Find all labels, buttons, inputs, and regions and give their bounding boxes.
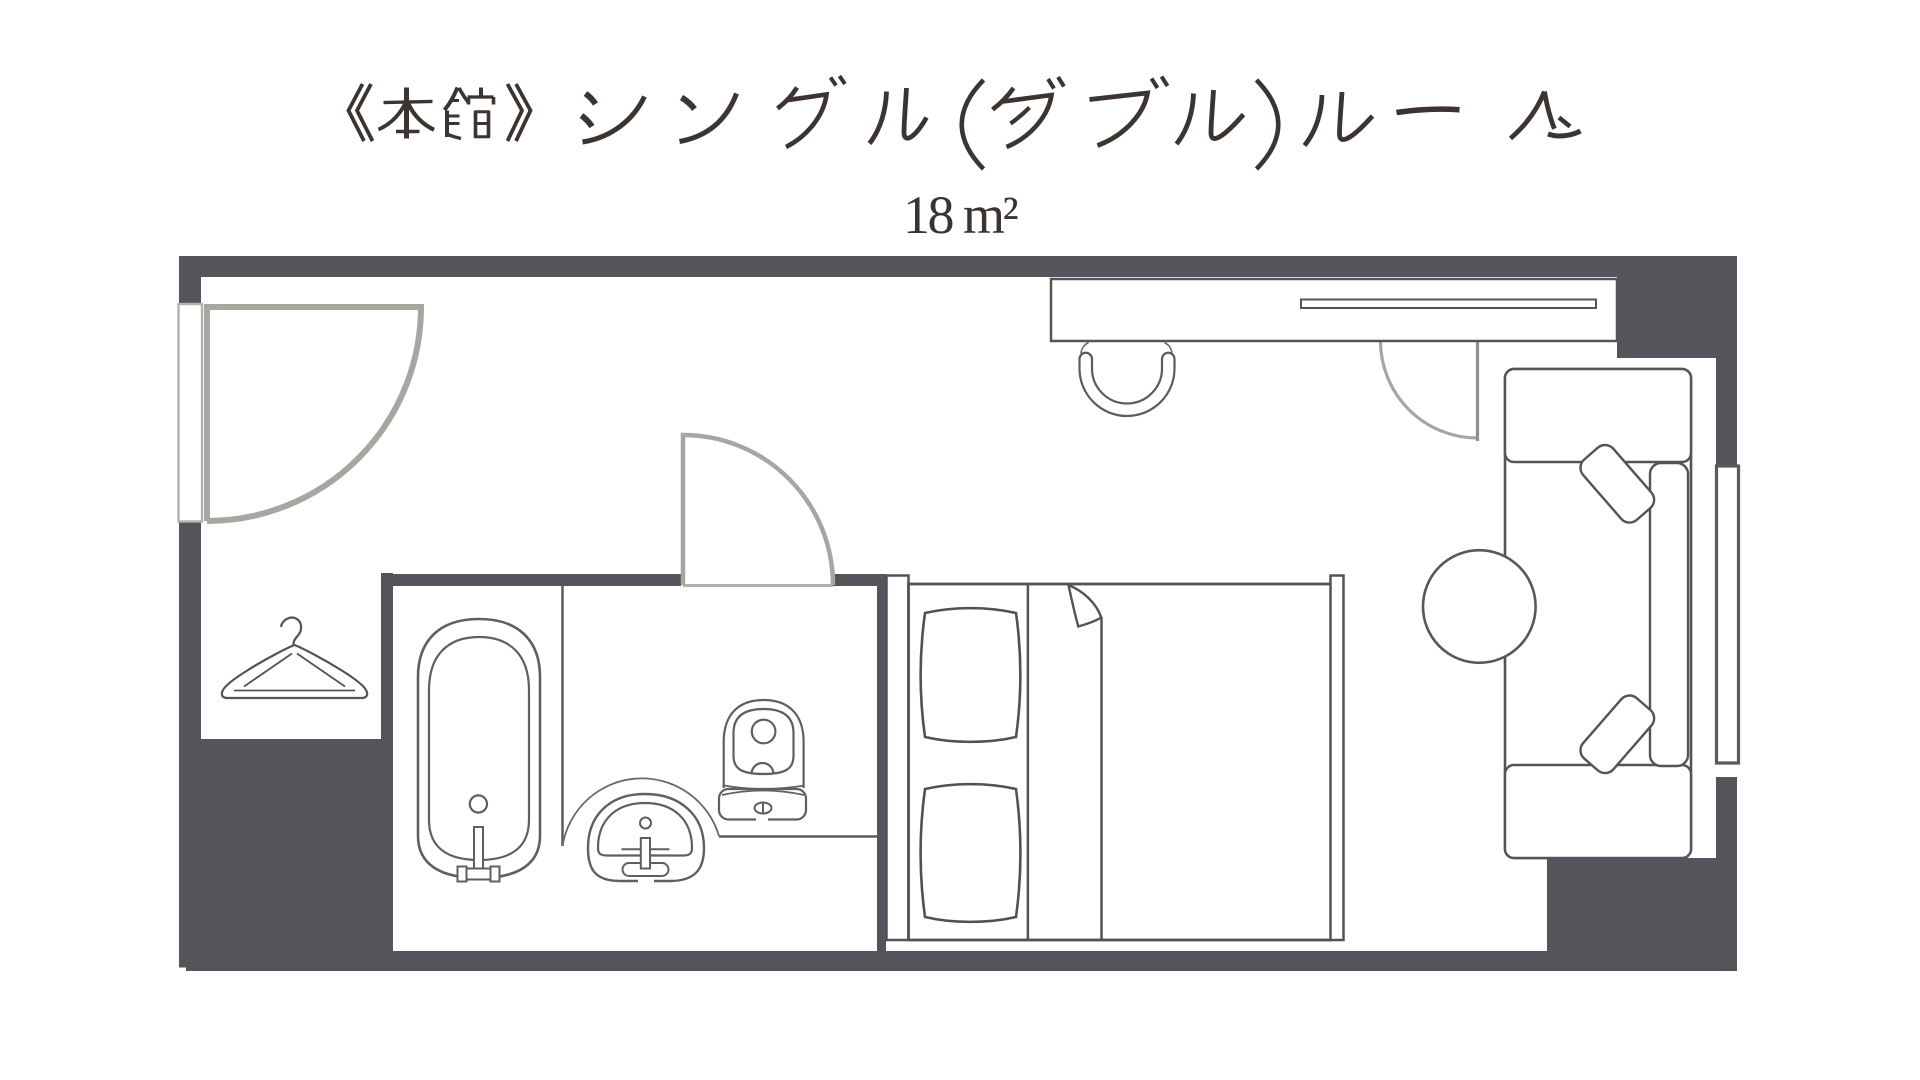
svg-text:18 m²: 18 m²	[903, 185, 1018, 245]
